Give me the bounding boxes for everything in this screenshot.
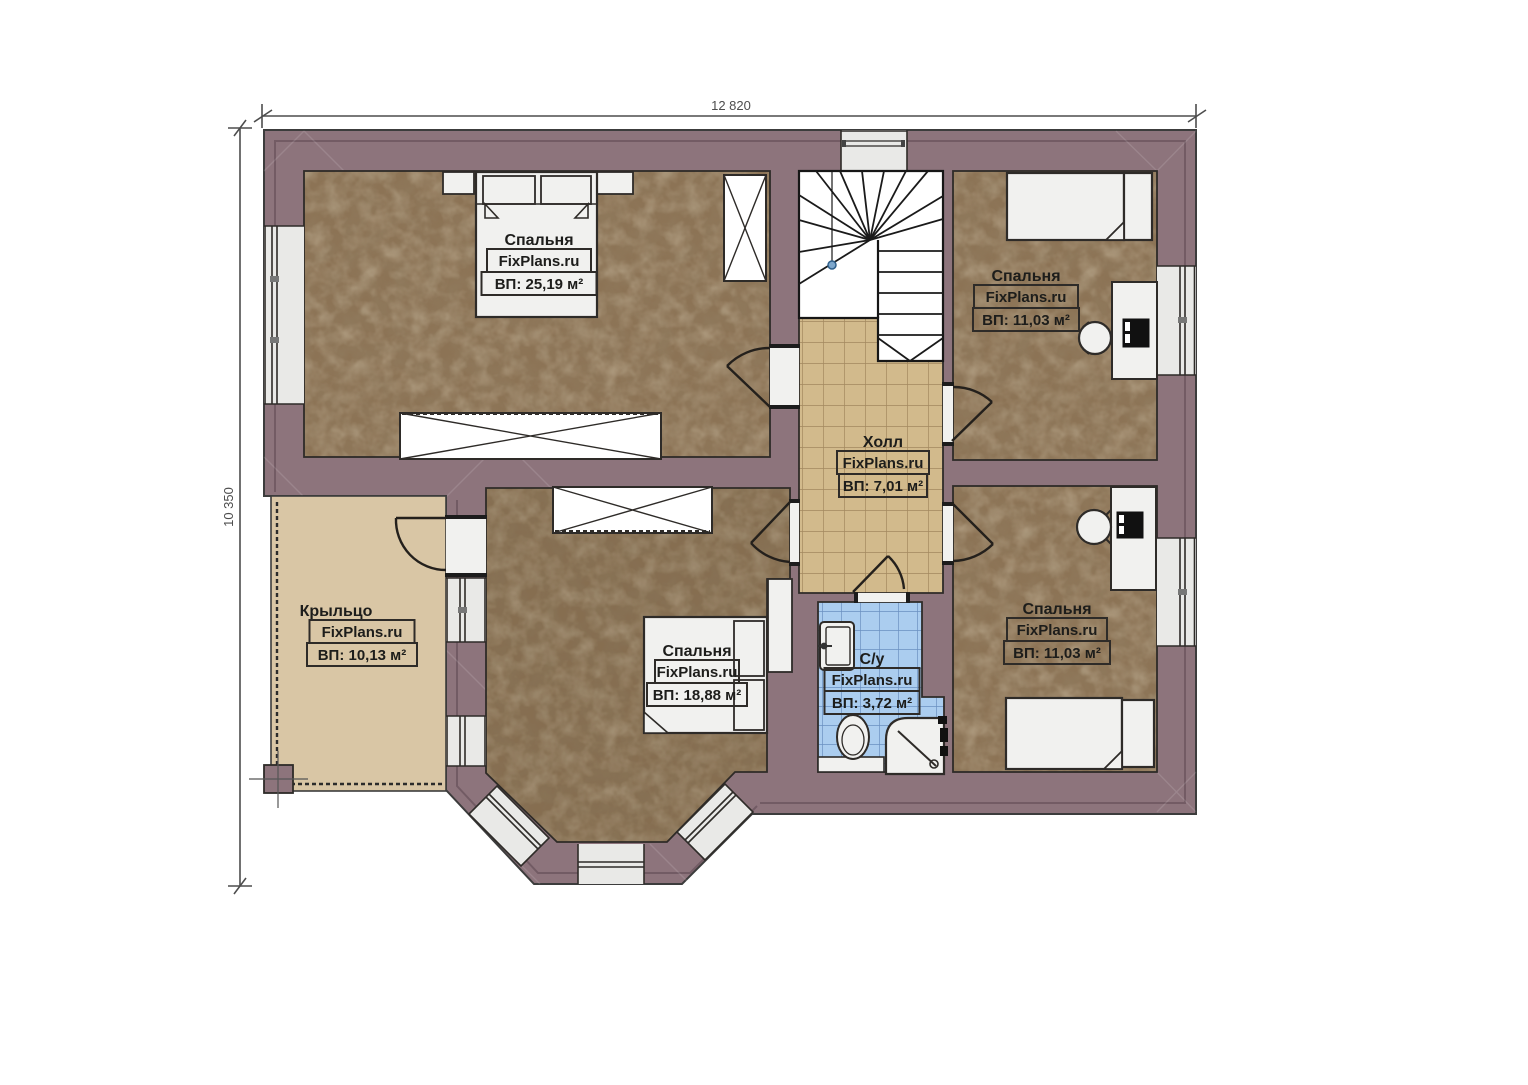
svg-text:FixPlans.ru: FixPlans.ru [657,664,738,681]
svg-text:Спальня: Спальня [662,643,731,660]
svg-text:Спальня: Спальня [991,268,1060,285]
svg-text:FixPlans.ru: FixPlans.ru [832,672,913,689]
svg-text:FixPlans.ru: FixPlans.ru [499,253,580,270]
svg-text:ВП: 10,13 м²: ВП: 10,13 м² [318,647,407,664]
svg-text:Холл: Холл [863,434,903,451]
svg-text:ВП: 3,72 м²: ВП: 3,72 м² [832,695,912,712]
svg-text:FixPlans.ru: FixPlans.ru [843,455,924,472]
svg-text:FixPlans.ru: FixPlans.ru [322,624,403,641]
svg-text:FixPlans.ru: FixPlans.ru [986,289,1067,306]
svg-text:ВП: 18,88 м²: ВП: 18,88 м² [653,687,742,704]
svg-text:Крыльцо: Крыльцо [300,603,373,620]
svg-text:10 350: 10 350 [221,487,236,527]
svg-text:12 820: 12 820 [711,98,751,113]
svg-text:ВП: 7,01 м²: ВП: 7,01 м² [843,478,923,495]
svg-text:FixPlans.ru: FixPlans.ru [1017,622,1098,639]
svg-text:ВП: 11,03 м²: ВП: 11,03 м² [1013,645,1101,662]
svg-text:ВП: 25,19 м²: ВП: 25,19 м² [495,276,584,293]
svg-text:Спальня: Спальня [1022,601,1091,618]
svg-text:Спальня: Спальня [504,232,573,249]
svg-text:С/у: С/у [860,651,885,668]
svg-text:ВП: 11,03 м²: ВП: 11,03 м² [982,312,1070,329]
